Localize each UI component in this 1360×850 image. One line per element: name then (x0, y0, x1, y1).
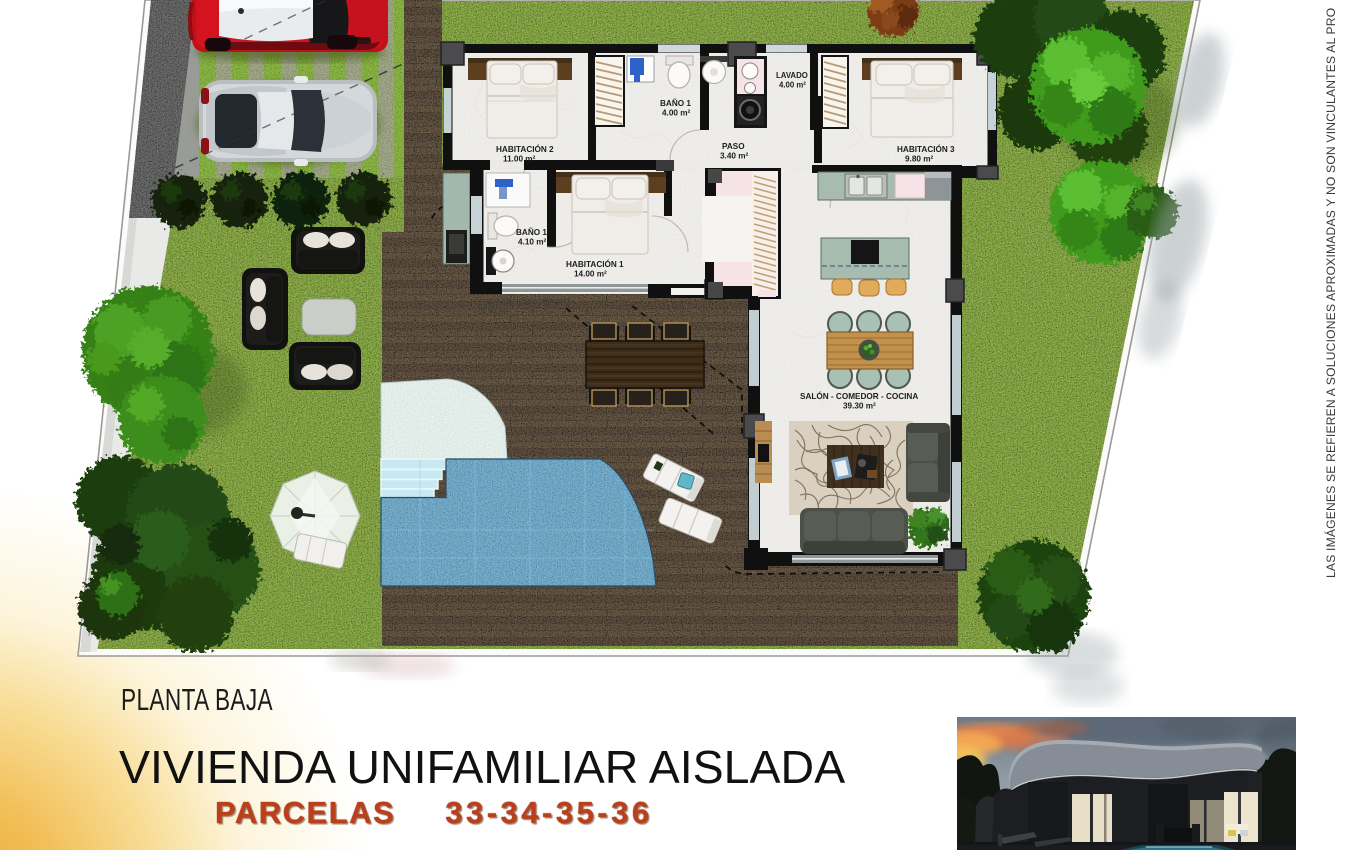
svg-text:3.40 m²: 3.40 m² (720, 152, 748, 161)
svg-text:PASO: PASO (722, 142, 745, 151)
svg-text:BAÑO 1: BAÑO 1 (660, 98, 691, 108)
svg-text:TERRAZA SEMICUBIERTA: TERRAZA SEMICUBIERTA (474, 298, 572, 307)
svg-text:9.80 m²: 9.80 m² (905, 155, 933, 164)
svg-text:4.00 m²: 4.00 m² (779, 81, 806, 90)
svg-text:HABITACIÓN 3: HABITACIÓN 3 (897, 143, 955, 154)
svg-text:HABITACIÓN 1: HABITACIÓN 1 (566, 258, 624, 269)
svg-text:BAÑO 1: BAÑO 1 (516, 227, 547, 237)
svg-text:LAVADO: LAVADO (776, 71, 808, 80)
svg-text:17.60 m²: 17.60 m² (477, 307, 509, 316)
svg-text:11.00 m²: 11.00 m² (503, 155, 536, 164)
svg-text:SALÓN - COMEDOR - COCINA: SALÓN - COMEDOR - COCINA (800, 390, 918, 401)
svg-text:4.10 m²: 4.10 m² (518, 238, 546, 247)
svg-text:39.30 m²: 39.30 m² (843, 402, 876, 411)
svg-text:14.00 m²: 14.00 m² (574, 270, 607, 279)
svg-text:4.00 m²: 4.00 m² (662, 109, 690, 118)
svg-text:HABITACIÓN 2: HABITACIÓN 2 (496, 143, 554, 154)
